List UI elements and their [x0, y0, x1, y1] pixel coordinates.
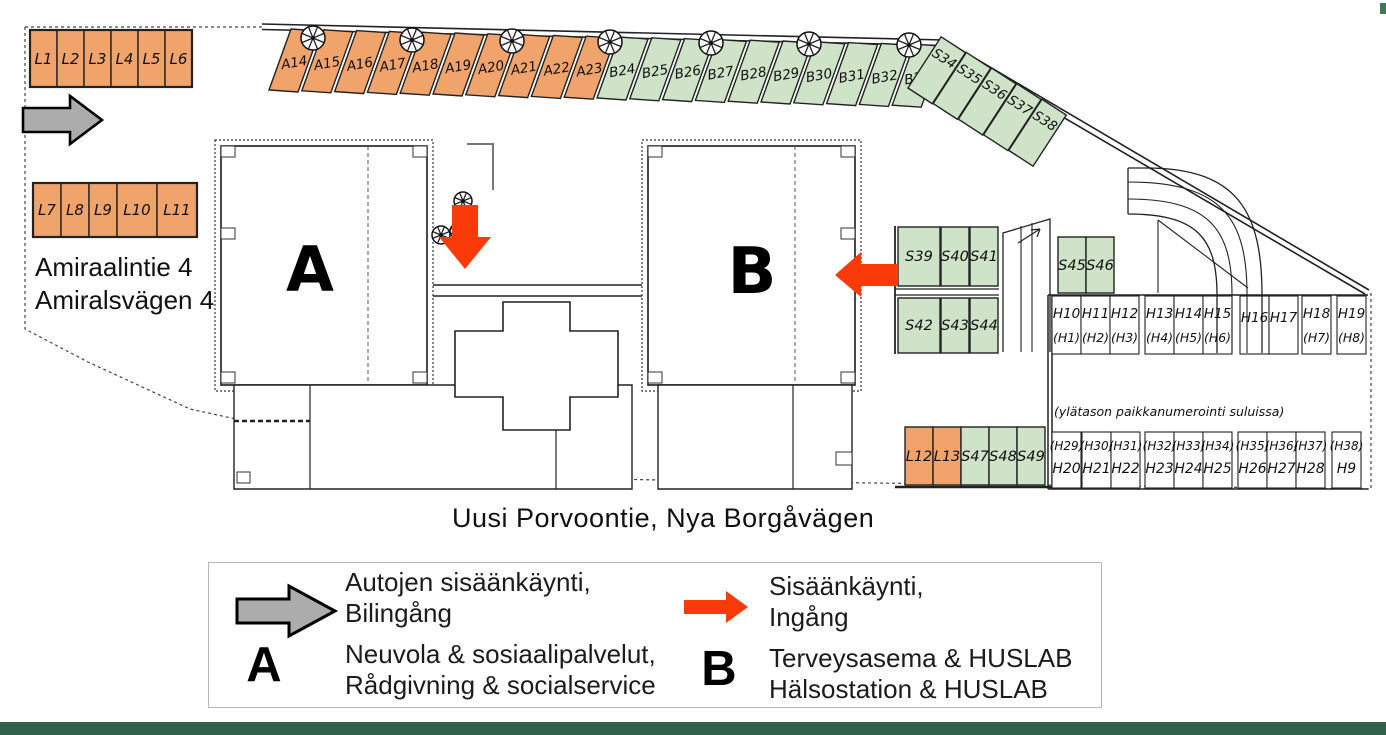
stall-label-L4: L4	[116, 50, 134, 68]
legend-text-line: Neuvola & sosiaalipalvelut,	[345, 639, 656, 670]
legend-letter-b: B	[689, 643, 749, 695]
stall-label-S40: S40	[941, 249, 969, 265]
stall-label-S41: S41	[970, 249, 998, 265]
stall-label-L11: L11	[163, 201, 190, 219]
tree-center	[608, 40, 612, 44]
tree-center	[907, 43, 911, 47]
entrance-path-hook	[467, 144, 493, 190]
tree-icon	[598, 30, 622, 54]
tree-center	[410, 38, 414, 42]
tree-center	[439, 233, 443, 237]
stall-cell	[1337, 296, 1366, 354]
building-b-annex	[658, 385, 852, 489]
entrance-arrow-icon	[684, 590, 750, 624]
stall-label-L7: L7	[38, 201, 56, 219]
street-label-bottom: Uusi Porvoontie, Nya Borgåvägen	[452, 503, 874, 534]
stall-label-(H37): (H37)	[1294, 439, 1328, 453]
stall-cell	[1081, 296, 1110, 354]
door-notch	[836, 452, 852, 465]
legend-text-line: Rådgivning & socialservice	[345, 670, 656, 701]
tree-center	[709, 41, 713, 45]
corner-green-tick	[1380, 3, 1386, 14]
tree-icon	[400, 28, 424, 52]
stall-label-(H2): (H2)	[1082, 330, 1109, 345]
car-entrance-arrow	[23, 96, 102, 144]
building-a-letter: A	[286, 233, 334, 306]
stall-cell	[1145, 296, 1174, 354]
stall-label-H19: H19	[1338, 306, 1365, 322]
building-b-letter: B	[728, 235, 777, 309]
stall-label-(H1): (H1)	[1053, 330, 1080, 345]
stall-label-H17: H17	[1270, 310, 1298, 326]
tree-icon	[500, 29, 524, 53]
ramp-structure	[1003, 219, 1050, 352]
legend-text-line: Sisäänkäynti,	[769, 571, 924, 602]
legend-text-line: Ingång	[769, 602, 924, 633]
stall-label-H15: H15	[1204, 306, 1231, 322]
stall-label-H20: H20	[1052, 461, 1080, 477]
stall-label-(H8): (H8)	[1338, 330, 1365, 345]
door-notch	[841, 228, 855, 239]
legend-text-line: Autojen sisäänkäynti,	[345, 567, 591, 598]
stall-label-S42: S42	[905, 318, 933, 334]
door-notch	[648, 372, 662, 383]
stall-label-H12: H12	[1111, 306, 1138, 322]
stall-label-L10: L10	[123, 201, 150, 219]
stall-label-H11: H11	[1082, 306, 1109, 322]
stall-label-H10: H10	[1053, 306, 1080, 322]
stall-label-S44: S44	[970, 318, 998, 334]
stall-label-S45: S45	[1058, 258, 1086, 274]
tree-icon	[897, 33, 921, 57]
stall-label-H27: H27	[1267, 461, 1295, 477]
stall-label-L3: L3	[89, 50, 107, 68]
stall-label-L2: L2	[62, 50, 80, 68]
stall-label-S47: S47	[961, 449, 989, 465]
stall-label-(H34): (H34)	[1201, 439, 1235, 453]
legend-entrance-text: Sisäänkäynti, Ingång	[769, 571, 924, 633]
tree-icon	[797, 32, 821, 56]
stall-label-H21: H21	[1082, 461, 1110, 477]
footer-green-bar	[0, 722, 1386, 735]
stall-label-H18: H18	[1303, 306, 1330, 322]
stall-cell	[1110, 296, 1139, 354]
legend-building-a-text: Neuvola & sosiaalipalvelut, Rådgivning &…	[345, 639, 656, 701]
door-notch	[841, 372, 855, 383]
stall-label-(H5): (H5)	[1175, 330, 1202, 345]
stall-label-L12: L12	[906, 449, 933, 465]
tree-center	[311, 36, 315, 40]
stall-label-S49: S49	[1017, 449, 1045, 465]
tree-center	[510, 39, 514, 43]
ramp-inner-wall	[1158, 220, 1248, 293]
stall-cell	[1174, 296, 1203, 354]
door-notch	[413, 372, 427, 383]
stall-label-H22: H22	[1111, 461, 1139, 477]
street-label-left: Amiraalintie 4 Amiralsvägen 4	[35, 251, 214, 317]
stall-label-H23: H23	[1145, 461, 1173, 477]
street-left-line1: Amiraalintie 4	[35, 251, 214, 284]
door-notch	[221, 228, 235, 239]
stall-label-H26: H26	[1238, 461, 1266, 477]
stall-label-S48: S48	[989, 449, 1017, 465]
stall-label-(H7): (H7)	[1303, 330, 1330, 345]
legend-text-line: Bilingång	[345, 598, 591, 629]
door-notch	[221, 372, 235, 383]
stall-label-(H3): (H3)	[1111, 330, 1138, 345]
stall-label-L13: L13	[934, 449, 961, 465]
stall-label-(H4): (H4)	[1146, 330, 1173, 345]
entrance-arrow-down	[439, 205, 491, 269]
legend-car-entrance-text: Autojen sisäänkäynti, Bilingång	[345, 567, 591, 629]
stall-label-L8: L8	[66, 201, 84, 219]
stall-label-H28: H28	[1296, 461, 1324, 477]
tree-icon	[301, 26, 325, 50]
stall-label-(H6): (H6)	[1204, 330, 1231, 345]
legend-text-line: Hälsostation & HUSLAB	[769, 674, 1072, 705]
door-notch	[841, 146, 855, 157]
stall-label-(H29): (H29)	[1050, 439, 1084, 453]
site-plan-page: L1L2L3L4L5L6L7L8L9L10L11A14A15A16A17A18A…	[0, 0, 1386, 735]
stall-label-(H31): (H31)	[1109, 439, 1143, 453]
gray-arrow-shape	[237, 586, 335, 636]
legend-text-line: Terveysasema & HUSLAB	[769, 643, 1072, 674]
legend-box: Autojen sisäänkäynti, Bilingång Sisäänkä…	[208, 562, 1102, 708]
door-notch	[221, 146, 235, 157]
stall-cell	[1052, 296, 1081, 354]
stall-label-H24: H24	[1174, 461, 1202, 477]
stall-label-L1: L1	[35, 50, 53, 68]
tree-icon	[699, 31, 723, 55]
door-notch	[237, 472, 250, 483]
stall-label-H9: H9	[1337, 461, 1357, 477]
stall-label-L5: L5	[143, 50, 161, 68]
stall-label-(H38): (H38)	[1330, 439, 1364, 453]
building-a-annex	[234, 385, 632, 489]
tree-center	[807, 42, 811, 46]
stall-cell	[1302, 296, 1331, 354]
stall-label-L9: L9	[94, 201, 112, 219]
stall-label-H13: H13	[1146, 306, 1173, 322]
stall-label-H25: H25	[1203, 461, 1231, 477]
car-entrance-arrow-icon	[235, 583, 339, 639]
red-arrow-shape	[684, 591, 748, 623]
door-notch	[648, 146, 662, 157]
stall-label-L6: L6	[170, 50, 188, 68]
stall-label-H14: H14	[1175, 306, 1202, 322]
stall-label-S39: S39	[905, 249, 933, 265]
stall-label-H16: H16	[1241, 310, 1268, 326]
street-left-line2: Amiralsvägen 4	[35, 284, 214, 317]
legend-letter-a: A	[234, 639, 294, 691]
tree-center	[461, 199, 465, 203]
stall-label-S43: S43	[941, 318, 969, 334]
upper-level-note: (ylätason paikkanumerointi suluissa)	[1054, 404, 1284, 419]
door-notch	[413, 146, 427, 157]
stall-label-S46: S46	[1086, 258, 1114, 274]
legend-building-b-text: Terveysasema & HUSLAB Hälsostation & HUS…	[769, 643, 1072, 705]
